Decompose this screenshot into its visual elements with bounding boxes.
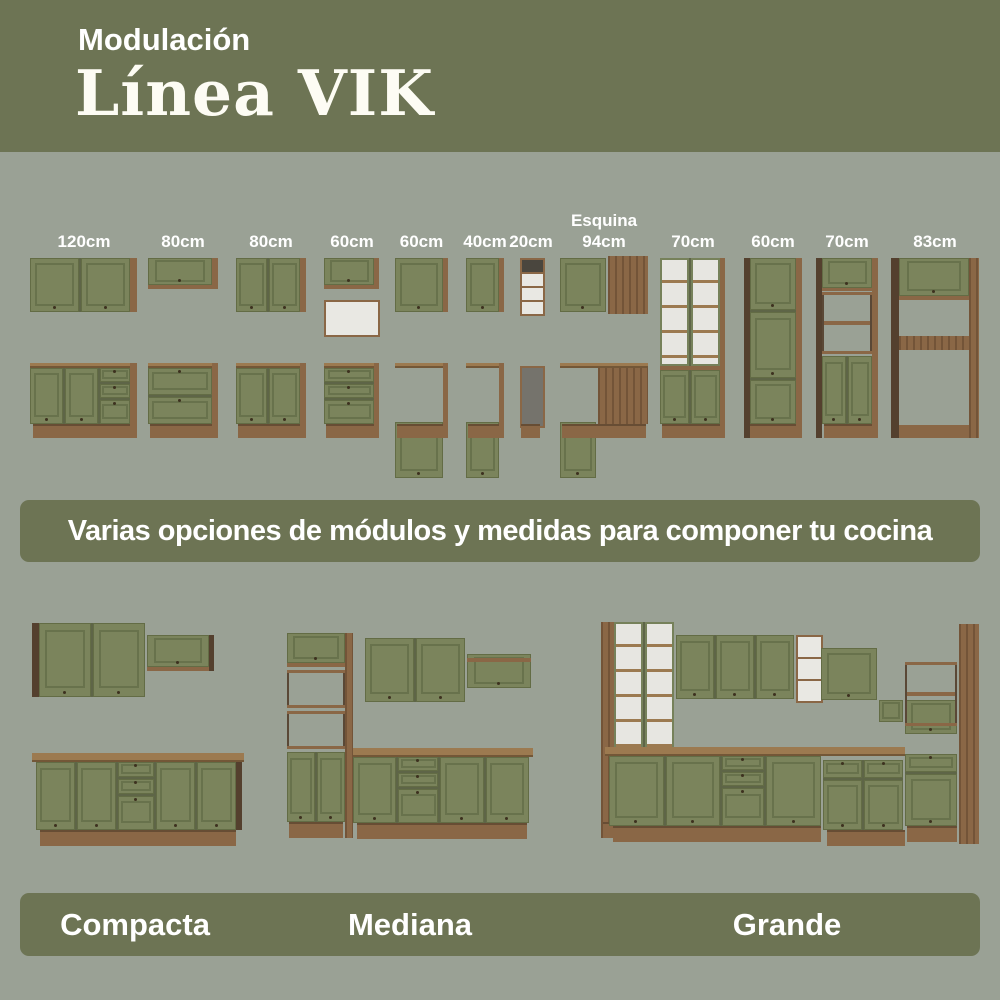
module-80cm-b: 80cm (236, 200, 306, 450)
wood-side-panel (872, 258, 878, 438)
wood-base-rail (899, 425, 969, 438)
drawer-stack (324, 368, 374, 424)
glass-display (660, 258, 720, 366)
shelf-cell (798, 637, 821, 657)
module-size-label: 83cm (881, 200, 989, 252)
drawer (864, 760, 903, 778)
open-base-unit (520, 366, 545, 428)
cabinet-door (416, 638, 465, 702)
upper-cabinet (30, 258, 130, 312)
base-cabinet (660, 370, 720, 424)
cabinet-door (750, 312, 796, 378)
cabinet-door (609, 756, 664, 826)
cabinet-door (236, 368, 267, 424)
drawer (148, 368, 212, 395)
cabinet-door (36, 762, 75, 830)
wood-side-panel (443, 363, 448, 438)
drawer (324, 400, 374, 424)
cabinet-door (236, 258, 267, 312)
base-cabinet (148, 368, 212, 424)
cabinet-door (750, 258, 796, 310)
plinth (357, 823, 527, 839)
wood-side-panel (300, 258, 306, 312)
wood-side-panel (959, 624, 979, 844)
module-size-label: 60cm (385, 200, 458, 252)
wood-side-panel (969, 258, 979, 438)
upper-cabinet (39, 623, 145, 697)
cabinet-door (287, 752, 315, 822)
drawer (118, 779, 154, 794)
wood-side-panel (345, 633, 353, 838)
cabinet-door (81, 258, 130, 312)
module-size-label: Esquina94cm (550, 200, 658, 252)
flip-door (899, 258, 969, 296)
corner-wood-panel (608, 256, 648, 314)
countertop (605, 747, 905, 756)
cabinet-door (822, 356, 846, 424)
wood-side-panel (374, 258, 379, 289)
wood-edge (899, 296, 969, 300)
wood-edge (324, 285, 374, 289)
cabinet-door (848, 356, 872, 424)
wood-edge (148, 285, 212, 289)
glass-door (660, 258, 689, 366)
upper-cabinet (236, 258, 300, 312)
flip-door (822, 258, 872, 288)
drawer (722, 772, 764, 786)
open-shelf-unit (520, 258, 545, 316)
shelf-cell (522, 274, 543, 286)
drawer-stack (722, 756, 764, 826)
plinth (468, 424, 499, 438)
header-band: Modulación Línea VIK (0, 0, 1000, 152)
drawer (823, 760, 862, 778)
glass-door (691, 258, 720, 366)
cabinet-door (197, 762, 236, 830)
base-run (353, 757, 529, 823)
plinth (238, 424, 300, 438)
drawer (100, 384, 130, 398)
wood-side-panel (796, 258, 802, 438)
base-wing (823, 760, 903, 830)
module-120cm: 120cm (30, 200, 138, 450)
corner-upper-door (821, 648, 877, 700)
flip-door (147, 635, 209, 667)
cabinet-door (676, 635, 714, 699)
module-83cm-fridge: 83cm (891, 200, 979, 450)
cabinet-door (65, 368, 98, 424)
cabinet-door (317, 752, 345, 822)
countertop (466, 363, 499, 368)
wood-side-panel (130, 363, 137, 438)
corner-wood-panel (598, 368, 648, 424)
plinth (150, 424, 212, 438)
module-20cm: 20cm (520, 200, 542, 450)
flip-door (324, 258, 374, 285)
drawer (398, 789, 438, 823)
kitchen-mediana-illustration (285, 608, 535, 850)
plinth (907, 826, 957, 842)
plinth (326, 424, 374, 438)
footer-band: Compacta Mediana Grande (20, 893, 980, 956)
drawer (100, 368, 130, 382)
wood-side-panel (374, 363, 379, 438)
module-size-label: 70cm (650, 200, 736, 252)
base-run (36, 762, 236, 830)
banner: Varias opciones de módulos y medidas par… (20, 500, 980, 562)
drawer (324, 384, 374, 398)
cabinet-door (156, 762, 195, 830)
cabinet-door (716, 635, 754, 699)
wood-side-panel (720, 258, 725, 438)
wood-side-panel (300, 363, 306, 438)
wood-side-panel (32, 623, 39, 697)
plinth (827, 830, 905, 846)
open-shelf (324, 300, 380, 337)
module-size-label: 60cm (314, 200, 390, 252)
drawer (148, 397, 212, 424)
wood-edge (147, 667, 209, 671)
wood-side-panel (212, 363, 218, 438)
shelf-cell (522, 288, 543, 300)
drawer (722, 788, 764, 826)
plinth (824, 424, 872, 438)
module-60cm-b: 60cm (395, 200, 448, 450)
cabinet-door (560, 258, 606, 312)
module-60cm-a: 60cm (324, 200, 380, 450)
cabinet-door (30, 368, 63, 424)
kitchen-grande-illustration (595, 602, 990, 860)
wood-side-panel (236, 762, 242, 830)
module-size-label: 40cm (456, 200, 514, 252)
cabinet-door (691, 370, 720, 424)
cabinet-door (77, 762, 116, 830)
drawer (722, 756, 764, 770)
module-esquina-94cm: Esquina94cm (560, 200, 648, 450)
module-size-label: 80cm (138, 200, 228, 252)
wood-edge (467, 658, 531, 662)
base-cabinet (236, 368, 300, 424)
banner-text: Varias opciones de módulos y medidas par… (68, 515, 932, 548)
pantry-front (750, 258, 796, 424)
kitchen-label-grande: Grande (687, 893, 887, 956)
cabinet-door (905, 774, 957, 826)
drawer (398, 757, 438, 771)
cabinet-door (864, 780, 903, 830)
module-size-label: 80cm (226, 200, 316, 252)
kitchen-label-mediana: Mediana (310, 893, 510, 956)
cabinet-door (756, 635, 794, 699)
appliance-niche (822, 292, 872, 354)
drawer (100, 400, 130, 424)
tower-base (905, 754, 957, 826)
wood-brace (899, 336, 969, 350)
upper-run (676, 635, 794, 699)
cabinet-door (353, 757, 396, 823)
upper-connector-panel (879, 700, 903, 722)
cabinet-door (823, 780, 862, 830)
drawer-stack (118, 762, 154, 830)
kitchen-compacta-illustration (30, 615, 275, 850)
wood-side-panel (891, 258, 899, 438)
drawer (905, 754, 957, 772)
cabinet-door (766, 756, 821, 826)
cabinet-door (269, 258, 300, 312)
drawer (118, 796, 154, 830)
countertop (353, 748, 533, 757)
module-70cm-tower: 70cm (816, 200, 878, 450)
drawer-stack (398, 757, 438, 823)
glass-door (614, 622, 643, 760)
shelf-cell (798, 681, 821, 701)
module-size-label: 120cm (20, 200, 148, 252)
countertop (395, 363, 443, 368)
cabinet-door (440, 757, 483, 823)
cabinet-door (269, 368, 300, 424)
cabinet-door (39, 623, 91, 697)
plinth (613, 826, 821, 842)
drawer (324, 368, 374, 382)
drawer-door-unit (823, 760, 862, 830)
module-size-label: 20cm (510, 200, 552, 252)
header-subtitle: Modulación (78, 22, 250, 58)
plinth (397, 424, 443, 438)
base-cabinet (30, 368, 130, 424)
cabinet-door (365, 638, 414, 702)
plinth (521, 424, 540, 438)
plinth (40, 830, 236, 846)
cabinet-door (30, 258, 79, 312)
appliance-niche (905, 662, 957, 726)
shelf-cell (522, 302, 543, 314)
module-size-label: 60cm (734, 200, 812, 252)
drawer-door-unit (864, 760, 903, 830)
cabinet-door (93, 623, 145, 697)
base-cabinet (822, 356, 872, 424)
appliance-niche (287, 670, 345, 708)
module-40cm: 40cm (466, 200, 504, 450)
cabinet-door (466, 258, 499, 312)
countertop (32, 753, 244, 762)
wood-edge (822, 288, 872, 291)
glass-display (614, 622, 674, 760)
plinth (662, 424, 720, 438)
drawer-stack (100, 368, 130, 424)
kitchen-label-compacta: Compacta (35, 893, 235, 956)
module-70cm-hutch: 70cm (660, 200, 726, 450)
shelf-cell (522, 260, 543, 272)
base-cabinet (287, 752, 345, 822)
appliance-niche (287, 711, 345, 749)
shelf-cell (798, 659, 821, 679)
infographic-linea-vik: Modulación Línea VIK 120cm 80cm (0, 0, 1000, 1000)
wood-side-panel (130, 258, 137, 312)
plinth (562, 424, 646, 438)
cabinet-door (660, 370, 689, 424)
flip-door (148, 258, 212, 285)
module-size-label: 70cm (806, 200, 888, 252)
plinth (33, 424, 130, 438)
wood-side-panel (209, 635, 214, 671)
wood-edge (287, 663, 345, 667)
upper-cabinet (365, 638, 465, 702)
cabinet-door (750, 380, 796, 424)
drawer (398, 773, 438, 787)
module-60cm-pantry: 60cm (744, 200, 802, 450)
plinth (289, 822, 343, 838)
page-title: Línea VIK (75, 56, 434, 130)
cabinet-door (486, 757, 529, 823)
plinth (750, 424, 796, 438)
drawer (118, 762, 154, 777)
base-run (609, 756, 821, 826)
wood-side-panel (499, 258, 504, 312)
module-80cm-a: 80cm (148, 200, 218, 450)
cabinet-door (666, 756, 721, 826)
open-shelf-unit (796, 635, 823, 703)
wood-side-panel (499, 363, 504, 438)
cabinet-door (395, 258, 443, 312)
wood-side-panel (443, 258, 448, 312)
wood-side-panel (212, 258, 218, 289)
glass-door (645, 622, 674, 760)
flip-door (287, 633, 345, 663)
